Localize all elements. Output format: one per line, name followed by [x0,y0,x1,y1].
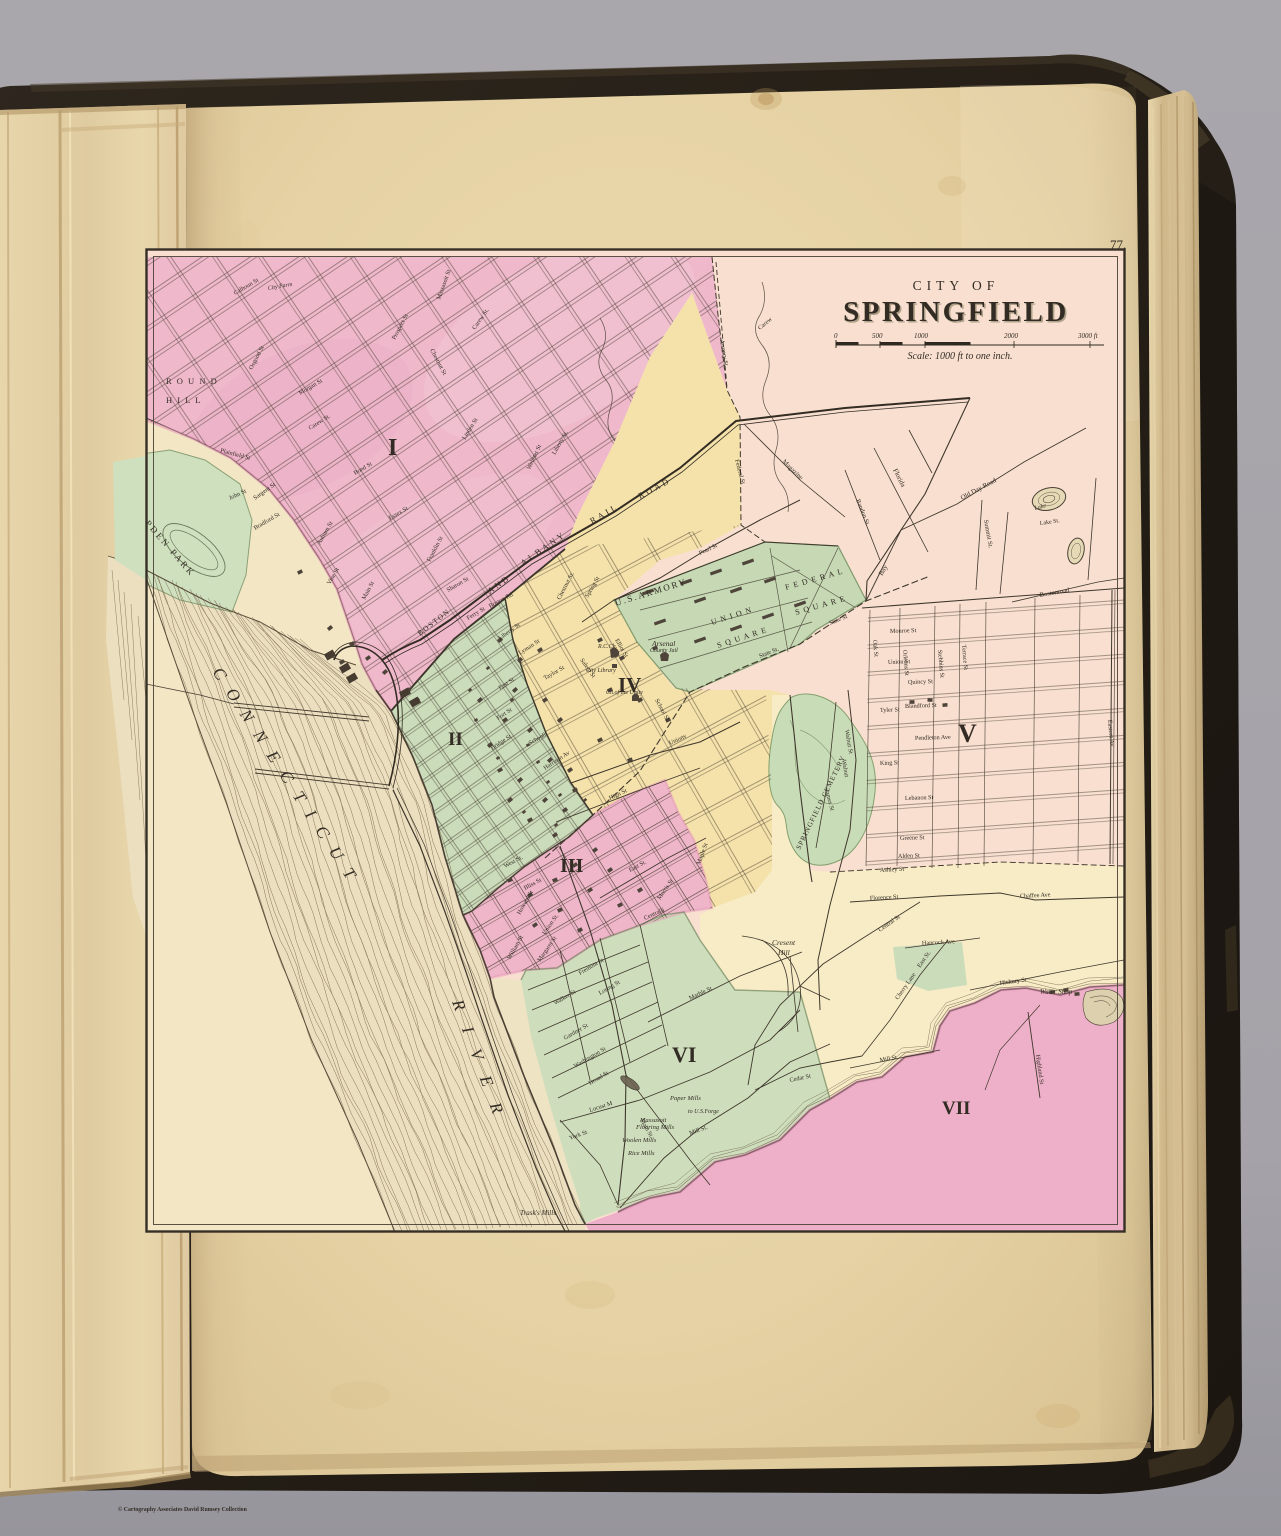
svg-text:© Cartography Associates David: © Cartography Associates David Rumsey Co… [118,1506,248,1513]
svg-text:Blandford St: Blandford St [905,702,937,710]
svg-text:Alden St: Alden St [898,852,920,860]
svg-text:VII: VII [942,1098,971,1119]
svg-text:Greene St: Greene St [900,834,925,842]
svg-text:2000: 2000 [1004,332,1019,340]
svg-text:III: III [560,855,584,877]
svg-text:King St: King St [880,759,900,767]
svg-text:R O U N D: R O U N D [166,376,218,386]
svg-text:Quincy St: Quincy St [908,678,933,686]
svg-text:Monroe St: Monroe St [890,627,917,635]
svg-text:V: V [958,719,977,748]
svg-text:CITY OF: CITY OF [913,278,1000,293]
svg-text:Trask's Mills: Trask's Mills [520,1209,556,1217]
svg-text:Ashley St: Ashley St [880,866,905,874]
svg-text:Tyler St: Tyler St [880,706,900,714]
svg-text:Scale: 1000 ft to one inch.: Scale: 1000 ft to one inch. [908,351,1013,362]
svg-text:H I L L: H I L L [166,395,202,405]
svg-text:1000: 1000 [914,332,929,340]
svg-text:SPRINGFIELD: SPRINGFIELD [843,296,1069,328]
svg-text:Water Shop: Water Shop [1040,988,1073,996]
svg-text:to U.S.Forge: to U.S.Forge [688,1109,719,1115]
svg-text:I: I [388,435,397,461]
svg-text:VI: VI [672,1042,696,1067]
svg-text:Florence St: Florence St [870,894,899,902]
svg-text:Hill: Hill [777,948,790,957]
svg-text:Lebanon St: Lebanon St [905,794,934,802]
svg-text:Rice Mills: Rice Mills [627,1150,655,1157]
svg-text:0: 0 [834,332,838,340]
svg-text:500: 500 [872,332,883,340]
svg-text:II: II [448,729,463,750]
svg-text:Paper Mills: Paper Mills [669,1095,701,1102]
svg-text:77.: 77. [1110,237,1126,252]
svg-text:Woolen Mills: Woolen Mills [622,1137,657,1144]
svg-text:Cresent: Cresent [772,938,796,947]
svg-text:3000 ft: 3000 ft [1077,332,1099,340]
svg-text:Pendleton Ave: Pendleton Ave [915,734,951,742]
svg-text:Arsenal: Arsenal [651,639,675,648]
